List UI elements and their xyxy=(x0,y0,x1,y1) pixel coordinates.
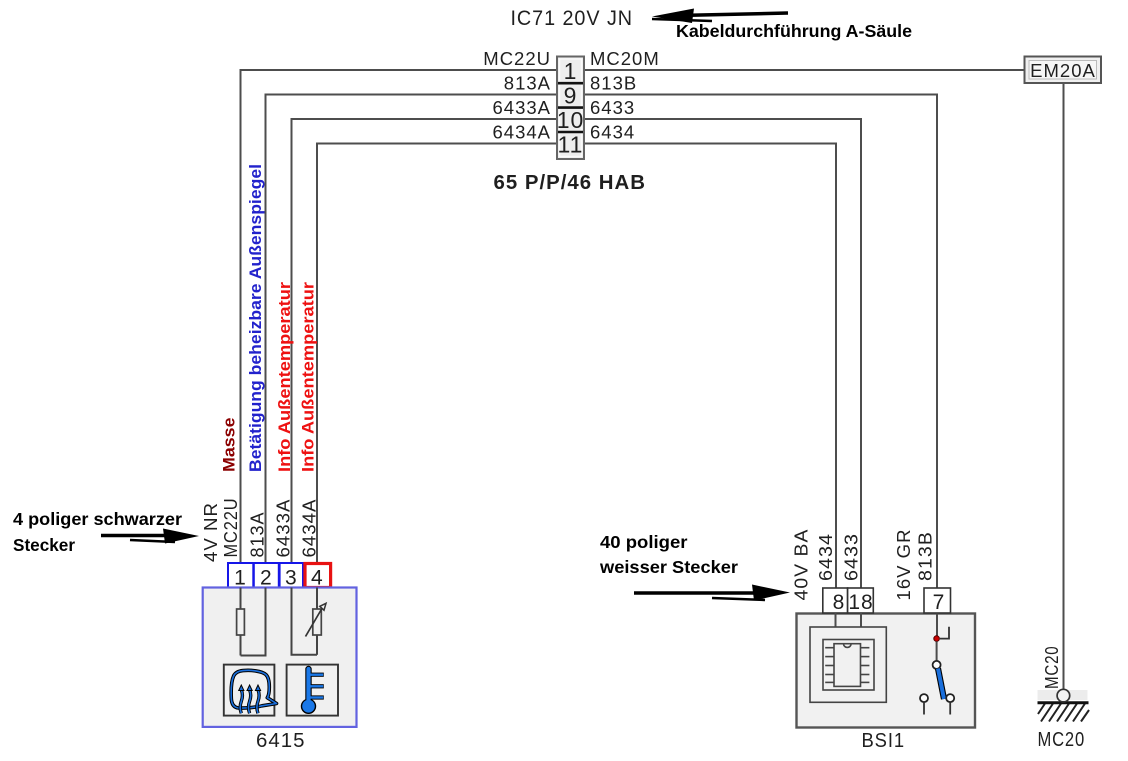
svg-text:6434: 6434 xyxy=(590,122,635,143)
svg-text:IC71 20V JN: IC71 20V JN xyxy=(511,7,634,30)
svg-text:6433A: 6433A xyxy=(273,499,294,558)
svg-text:6434: 6434 xyxy=(815,533,836,581)
svg-text:MC22U: MC22U xyxy=(483,48,551,69)
svg-text:MC20: MC20 xyxy=(1041,646,1062,690)
svg-text:MC20: MC20 xyxy=(1038,728,1086,751)
svg-text:1: 1 xyxy=(564,58,578,84)
svg-text:3: 3 xyxy=(285,567,298,590)
svg-text:1: 1 xyxy=(234,567,247,590)
svg-text:65 P/P/46 HAB: 65 P/P/46 HAB xyxy=(494,171,647,194)
svg-text:813B: 813B xyxy=(590,73,637,94)
svg-text:8: 8 xyxy=(833,591,846,614)
svg-text:813B: 813B xyxy=(915,531,936,581)
svg-text:Info Außentemperatur: Info Außentemperatur xyxy=(276,281,294,472)
svg-text:Betätigung beheizbare Außenspi: Betätigung beheizbare Außenspiegel xyxy=(247,164,265,472)
svg-text:18: 18 xyxy=(848,591,873,614)
svg-text:BSI1: BSI1 xyxy=(862,729,906,752)
svg-text:Masse: Masse xyxy=(221,418,239,473)
svg-text:6433: 6433 xyxy=(590,97,635,118)
svg-text:7: 7 xyxy=(933,591,946,614)
svg-text:6433: 6433 xyxy=(841,533,862,581)
svg-text:4: 4 xyxy=(311,567,324,590)
svg-text:813A: 813A xyxy=(504,73,551,94)
svg-text:2: 2 xyxy=(260,567,273,590)
svg-text:4 poliger schwarzer: 4 poliger schwarzer xyxy=(13,509,182,529)
svg-text:Info Außentemperatur: Info Außentemperatur xyxy=(300,281,318,472)
svg-text:813A: 813A xyxy=(247,512,268,558)
svg-text:6415: 6415 xyxy=(256,729,306,752)
svg-text:MC22U: MC22U xyxy=(220,498,241,558)
svg-text:6434A: 6434A xyxy=(493,122,552,143)
svg-text:6434A: 6434A xyxy=(299,499,320,558)
svg-text:EM20A: EM20A xyxy=(1030,60,1096,81)
svg-text:40 poliger: 40 poliger xyxy=(600,532,688,552)
svg-text:weisser Stecker: weisser Stecker xyxy=(599,557,738,577)
svg-text:MC20M: MC20M xyxy=(590,48,660,69)
svg-text:4V NR: 4V NR xyxy=(200,502,221,562)
svg-text:9: 9 xyxy=(564,83,578,109)
svg-text:6433A: 6433A xyxy=(493,97,552,118)
svg-text:Kabeldurchführung A-Säule: Kabeldurchführung A-Säule xyxy=(676,21,912,41)
svg-text:11: 11 xyxy=(558,132,584,158)
svg-text:Stecker: Stecker xyxy=(13,535,75,555)
svg-text:40V BA: 40V BA xyxy=(791,529,812,601)
svg-text:16V GR: 16V GR xyxy=(893,529,914,601)
svg-text:10: 10 xyxy=(557,107,585,133)
